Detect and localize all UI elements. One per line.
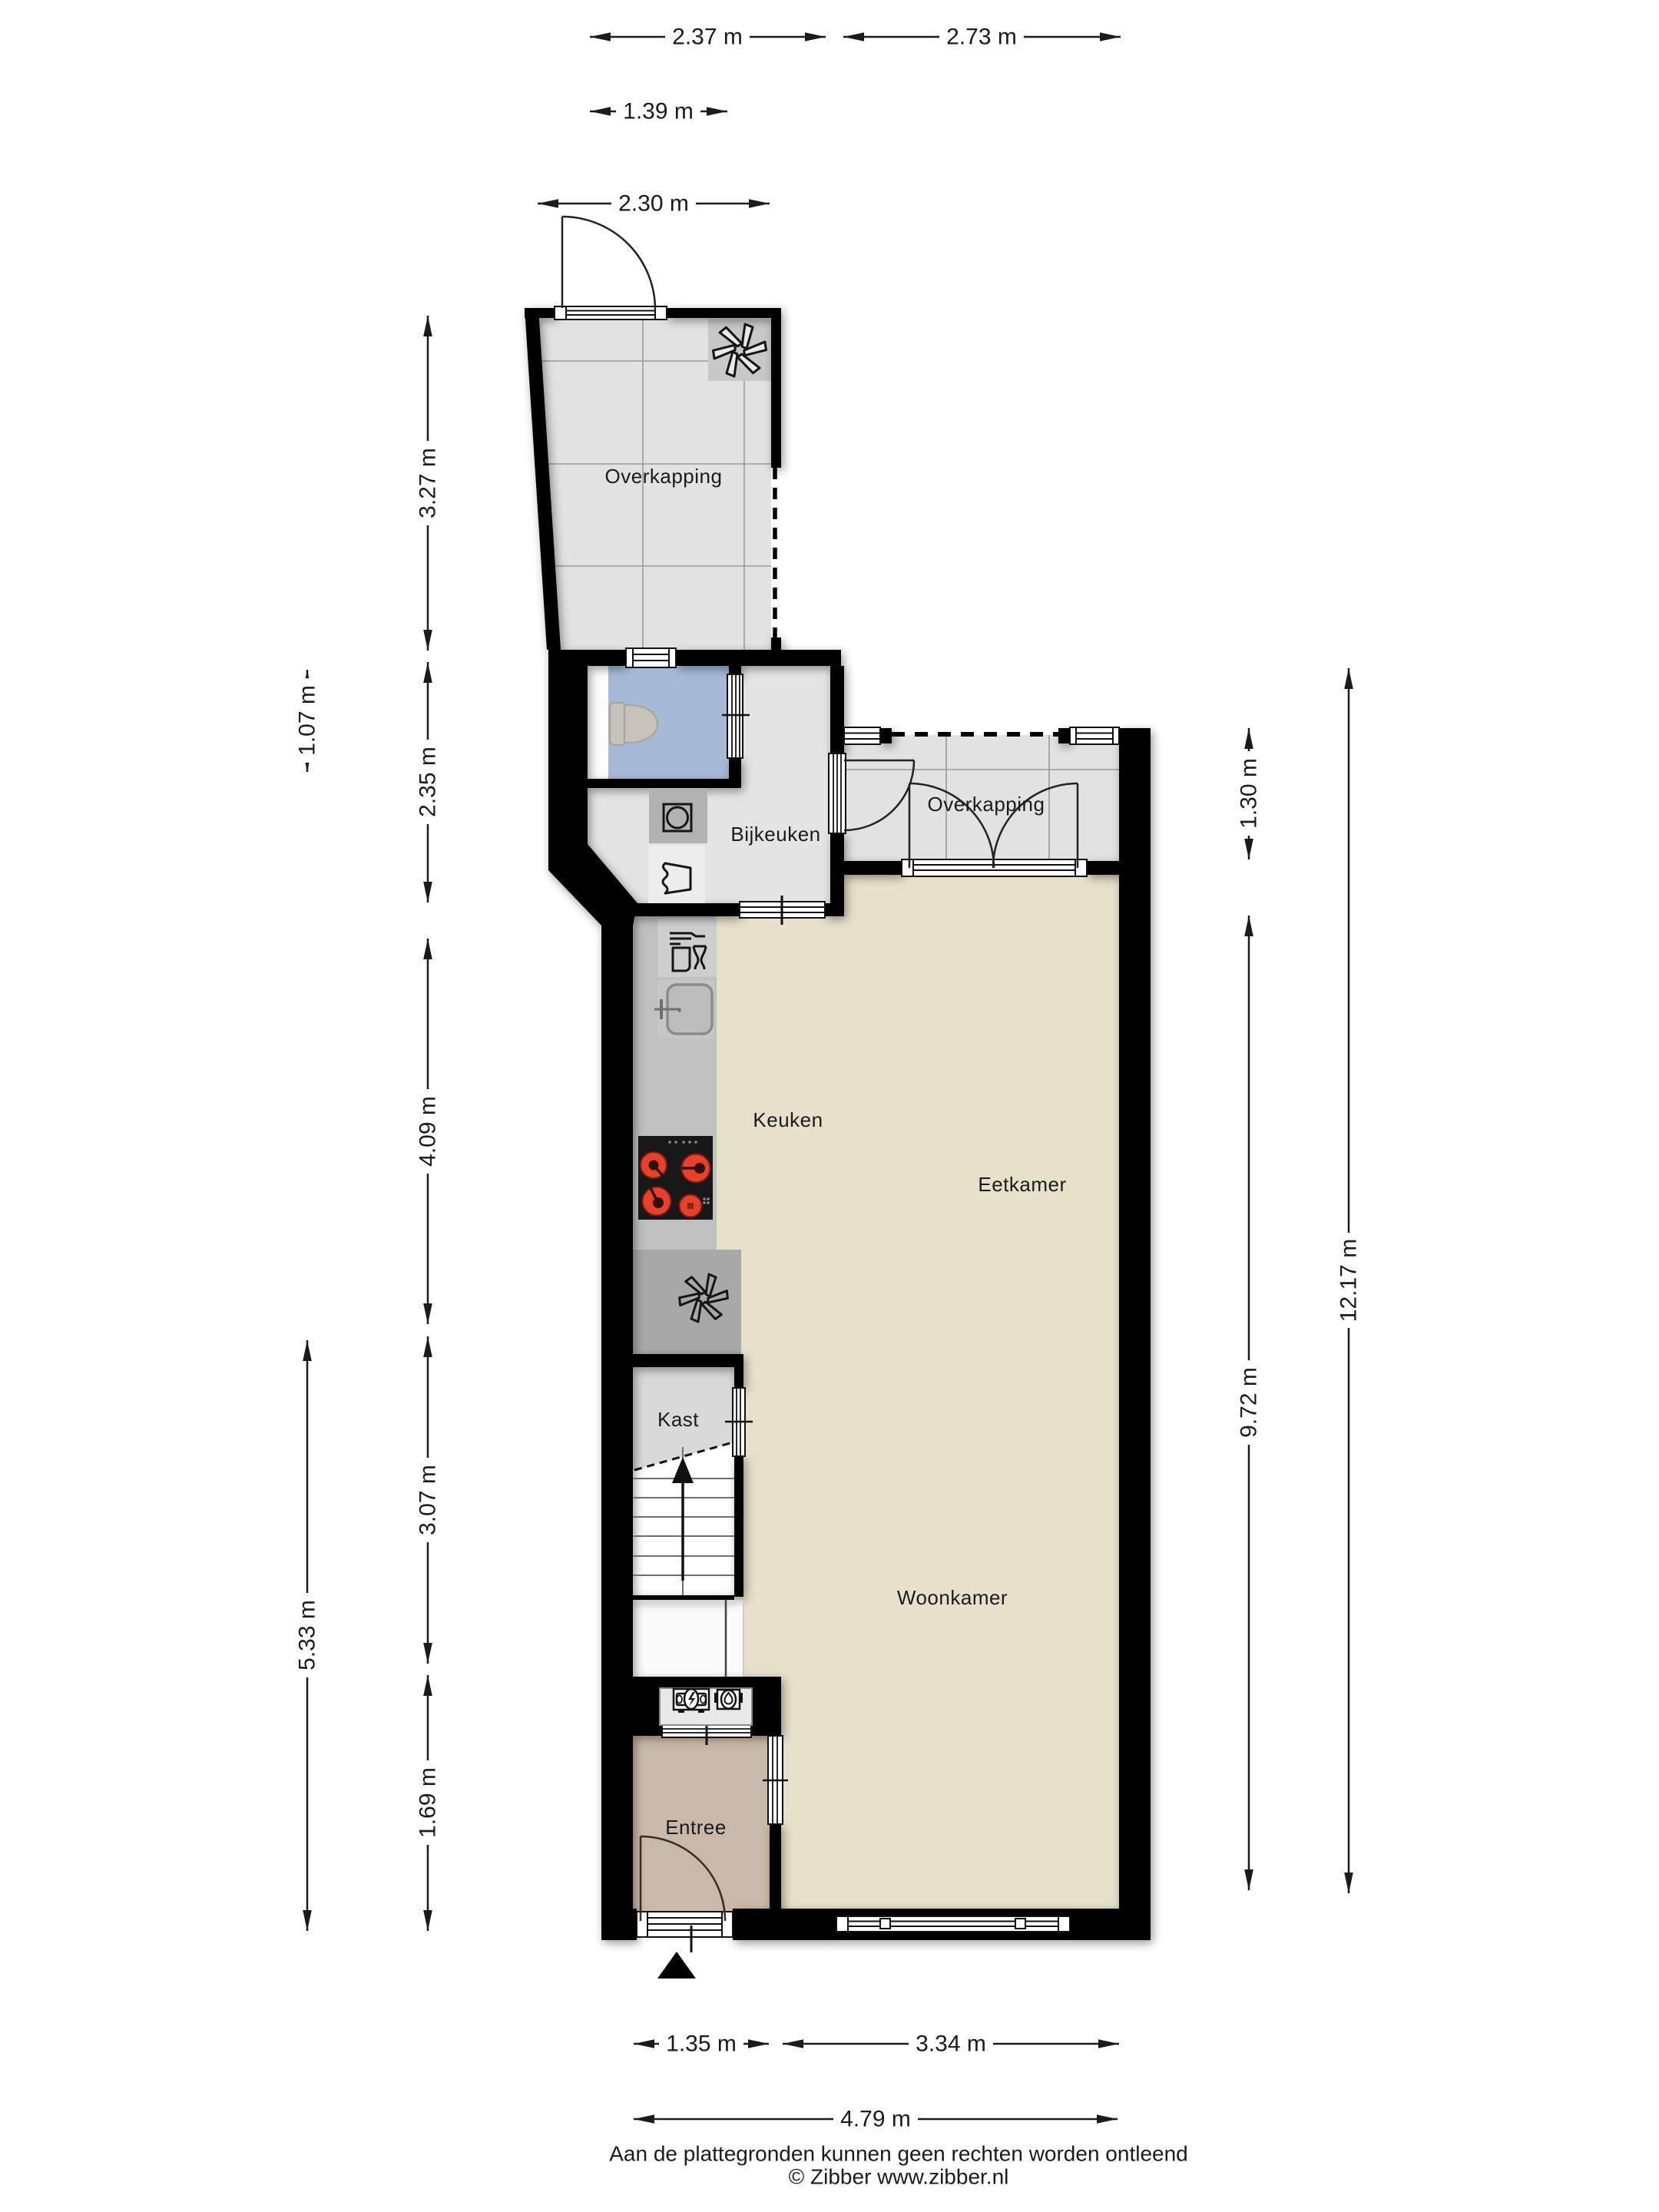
svg-text:Aan de plattegronden kunnen ge: Aan de plattegronden kunnen geen rechten…	[609, 2142, 1187, 2166]
svg-text:4.09 m: 4.09 m	[416, 1096, 441, 1167]
svg-text:Entree: Entree	[665, 1816, 727, 1839]
svg-text:12.17 m: 12.17 m	[1336, 1239, 1362, 1322]
svg-text:Eetkamer: Eetkamer	[978, 1173, 1066, 1196]
svg-text:9.72 m: 9.72 m	[1237, 1367, 1262, 1438]
svg-text:Bijkeuken: Bijkeuken	[730, 823, 820, 846]
svg-text:1.35 m: 1.35 m	[666, 2032, 737, 2057]
svg-text:1.69 m: 1.69 m	[416, 1767, 441, 1838]
svg-text:Kast: Kast	[657, 1408, 699, 1431]
svg-text:3.27 m: 3.27 m	[416, 448, 441, 518]
svg-text:1.30 m: 1.30 m	[1237, 758, 1262, 829]
svg-text:Overkapping: Overkapping	[928, 793, 1045, 816]
svg-text:5.33 m: 5.33 m	[295, 1600, 320, 1671]
svg-text:3.34 m: 3.34 m	[916, 2032, 986, 2057]
svg-text:4.79 m: 4.79 m	[840, 2107, 911, 2132]
svg-text:2.35 m: 2.35 m	[416, 747, 441, 817]
svg-text:2.37 m: 2.37 m	[672, 25, 743, 50]
svg-text:1.39 m: 1.39 m	[623, 99, 694, 124]
svg-text:2.73 m: 2.73 m	[946, 25, 1017, 50]
svg-text:Overkapping: Overkapping	[605, 465, 723, 488]
svg-text:1.07 m: 1.07 m	[295, 685, 320, 756]
svg-text:3.07 m: 3.07 m	[416, 1465, 441, 1535]
svg-text:Keuken: Keuken	[753, 1108, 823, 1131]
svg-text:2.30 m: 2.30 m	[618, 191, 689, 217]
svg-text:© Zibber www.zibber.nl: © Zibber www.zibber.nl	[789, 2165, 1009, 2189]
svg-text:Woonkamer: Woonkamer	[897, 1586, 1008, 1609]
